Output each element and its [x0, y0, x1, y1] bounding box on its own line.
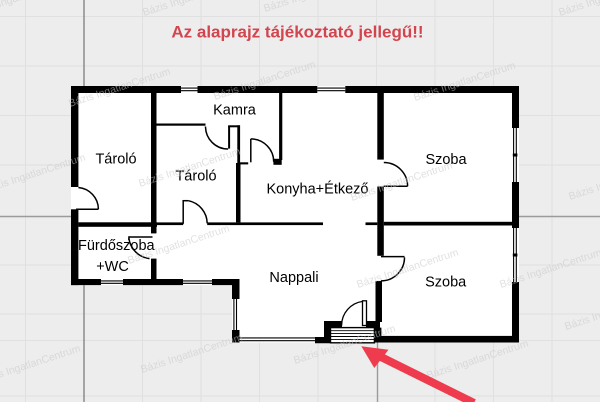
svg-text:Nappali: Nappali [269, 270, 318, 286]
svg-text:Az alaprajz tájékoztató jelleg: Az alaprajz tájékoztató jellegű!! [171, 23, 423, 42]
svg-text:Tároló: Tároló [95, 152, 136, 168]
svg-text:Szoba: Szoba [425, 275, 467, 291]
svg-text:+WC: +WC [96, 259, 129, 275]
svg-text:Kamra: Kamra [213, 103, 257, 119]
